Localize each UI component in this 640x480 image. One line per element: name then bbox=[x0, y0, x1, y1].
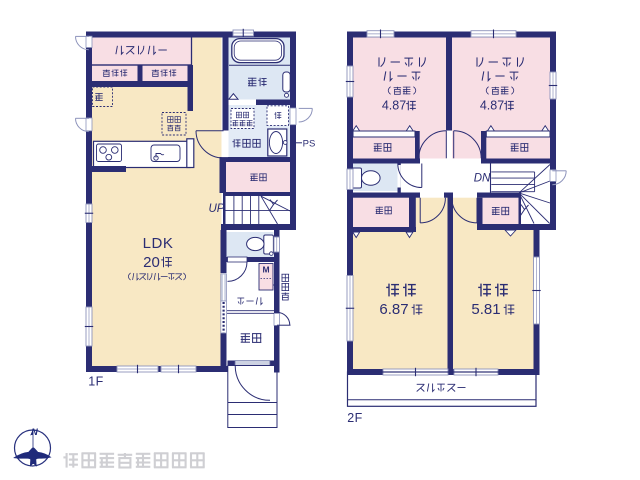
svg-text:4.87: 4.87 bbox=[382, 99, 406, 113]
svg-text:M: M bbox=[262, 265, 269, 275]
svg-text:20: 20 bbox=[143, 254, 160, 271]
svg-text:2F: 2F bbox=[347, 411, 363, 425]
svg-text:PS: PS bbox=[303, 138, 316, 149]
svg-text:DN: DN bbox=[474, 173, 491, 185]
svg-text:1F: 1F bbox=[88, 375, 104, 389]
svg-text:4.87: 4.87 bbox=[480, 99, 504, 113]
svg-text:6.87: 6.87 bbox=[379, 301, 408, 318]
svg-text:LDK: LDK bbox=[143, 235, 174, 252]
svg-text:5.81: 5.81 bbox=[471, 301, 500, 318]
svg-text:UP: UP bbox=[209, 203, 225, 215]
